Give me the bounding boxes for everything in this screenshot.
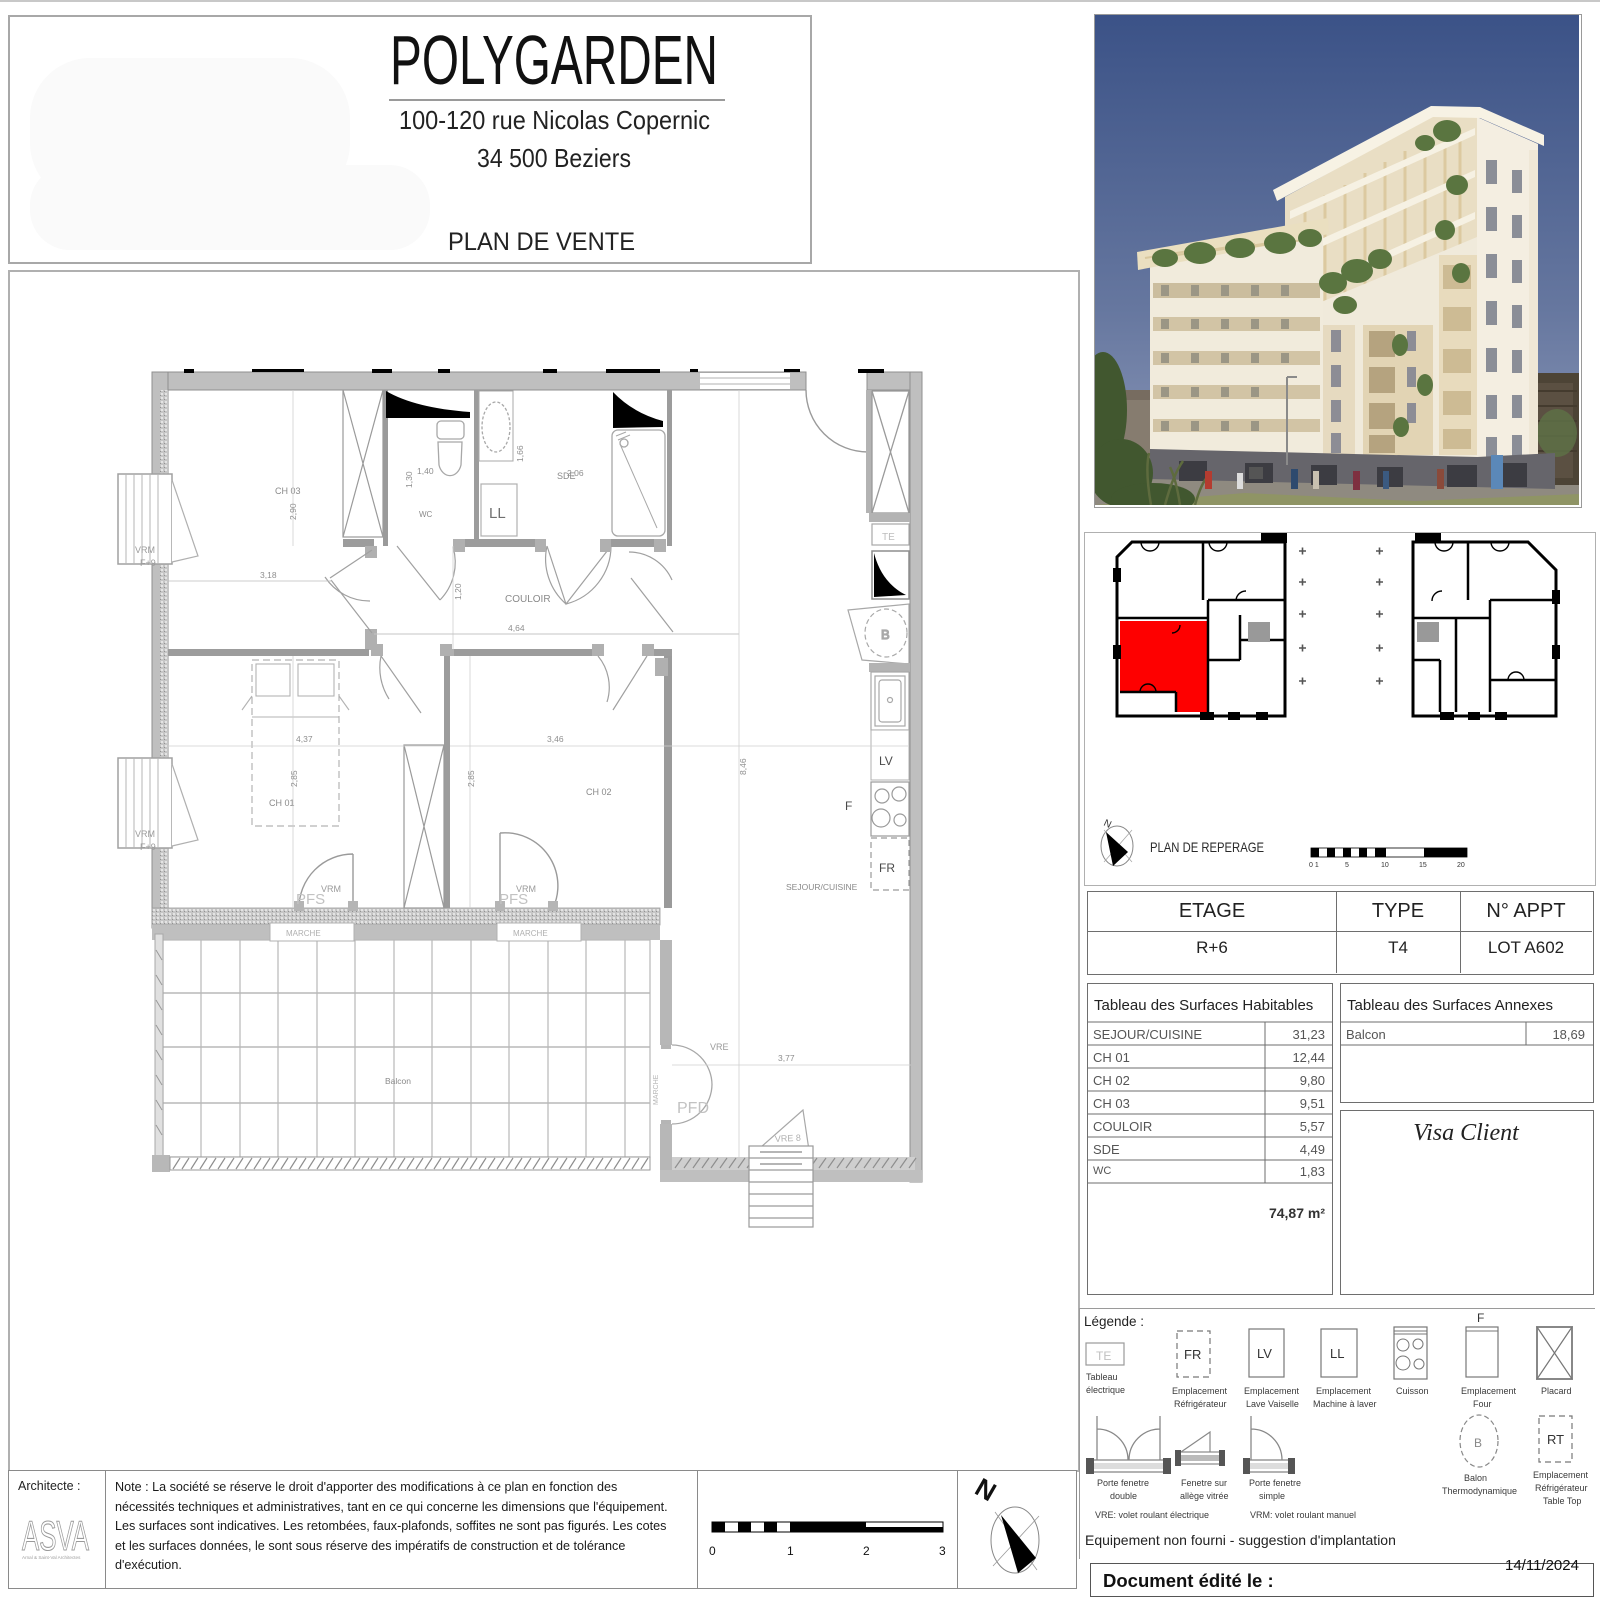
svg-text:Emplacement: Emplacement (1533, 1470, 1589, 1480)
svg-text:Tableau: Tableau (1086, 1372, 1118, 1382)
svg-text:F+9: F+9 (140, 558, 156, 568)
svg-text:B: B (1474, 1436, 1482, 1450)
svg-text:0: 0 (709, 1544, 716, 1558)
svg-text:5: 5 (1345, 862, 1349, 869)
svg-text:Réfrigérateur: Réfrigérateur (1535, 1483, 1588, 1493)
svg-text:34 500 Beziers: 34 500 Beziers (477, 143, 631, 173)
svg-text:Porte fenetre: Porte fenetre (1097, 1478, 1149, 1488)
svg-text:TE: TE (1096, 1349, 1111, 1363)
svg-text:N: N (1102, 818, 1113, 831)
svg-text:1,30: 1,30 (404, 471, 414, 488)
svg-text:100-120 rue Nicolas Copernic: 100-120 rue Nicolas Copernic (399, 105, 710, 135)
svg-text:MARCHE: MARCHE (513, 929, 548, 938)
svg-text:Placard: Placard (1541, 1386, 1572, 1396)
svg-text:Lave Vaiselle: Lave Vaiselle (1246, 1399, 1299, 1409)
svg-text:LV: LV (1257, 1346, 1272, 1361)
svg-text:CH 02: CH 02 (586, 787, 612, 797)
svg-text:1: 1 (787, 1544, 794, 1558)
svg-text:LV: LV (879, 754, 893, 768)
svg-text:FR: FR (1184, 1347, 1201, 1362)
svg-text:PLAN DE VENTE: PLAN DE VENTE (448, 228, 635, 256)
svg-text:2: 2 (863, 1544, 870, 1558)
svg-text:3,46: 3,46 (547, 734, 564, 744)
svg-text:allège vitrée: allège vitrée (1180, 1491, 1229, 1501)
svg-text:TE: TE (882, 532, 895, 543)
svg-text:Machine à laver: Machine à laver (1313, 1399, 1377, 1409)
svg-text:F: F (1477, 1311, 1484, 1325)
svg-text:10: 10 (1381, 862, 1389, 869)
svg-text:FR: FR (879, 861, 895, 875)
svg-text:Emplacement: Emplacement (1172, 1386, 1228, 1396)
svg-text:0 1: 0 1 (1309, 862, 1319, 869)
svg-text:Emplacement: Emplacement (1316, 1386, 1372, 1396)
svg-text:2,06: 2,06 (567, 468, 584, 478)
svg-text:PLAN DE REPERAGE: PLAN DE REPERAGE (1150, 839, 1264, 855)
svg-text:RT: RT (1547, 1432, 1564, 1447)
svg-text:2,85: 2,85 (466, 770, 476, 787)
svg-text:WC: WC (419, 510, 433, 519)
svg-text:VRE 8: VRE 8 (775, 1133, 802, 1144)
svg-text:Cuisson: Cuisson (1396, 1386, 1429, 1396)
svg-text:LL: LL (489, 505, 506, 522)
svg-text:double: double (1110, 1491, 1137, 1501)
svg-text:CH 01: CH 01 (269, 798, 295, 808)
svg-text:CH 03: CH 03 (275, 486, 301, 496)
svg-text:Porte fenetre: Porte fenetre (1249, 1478, 1301, 1488)
svg-text:VRM: VRM (135, 545, 155, 555)
svg-text:2,85: 2,85 (289, 770, 299, 787)
svg-text:Emplacement: Emplacement (1244, 1386, 1300, 1396)
svg-text:1,20: 1,20 (453, 583, 463, 600)
svg-text:F: F (845, 799, 852, 813)
svg-text:ASVA: ASVA (22, 1514, 89, 1559)
svg-text:Fenetre sur: Fenetre sur (1181, 1478, 1227, 1488)
svg-text:électrique: électrique (1086, 1385, 1125, 1395)
svg-text:Balcon: Balcon (385, 1076, 411, 1086)
svg-text:Emplacement: Emplacement (1461, 1386, 1517, 1396)
svg-text:N: N (970, 1472, 1001, 1507)
svg-text:VRE: volet roulant électrique: VRE: volet roulant électrique (1095, 1510, 1209, 1520)
svg-text:MARCHE: MARCHE (653, 1074, 660, 1105)
svg-text:8,46: 8,46 (738, 758, 748, 775)
svg-text:3,18: 3,18 (260, 570, 277, 580)
svg-text:4,64: 4,64 (508, 623, 525, 633)
svg-text:COULOIR: COULOIR (505, 594, 551, 605)
svg-text:VRM: VRM (135, 829, 155, 839)
svg-text:Table Top: Table Top (1543, 1496, 1581, 1506)
svg-text:VRM: volet roulant manuel: VRM: volet roulant manuel (1250, 1510, 1356, 1520)
svg-text:Réfrigérateur: Réfrigérateur (1174, 1399, 1227, 1409)
svg-text:3,77: 3,77 (778, 1053, 795, 1063)
svg-text:Arnal & Saint-Val Architectes: Arnal & Saint-Val Architectes (22, 1555, 81, 1560)
svg-text:15: 15 (1419, 862, 1427, 869)
svg-text:20: 20 (1457, 862, 1465, 869)
svg-text:VRM: VRM (321, 884, 341, 894)
svg-text:3: 3 (939, 1544, 946, 1558)
svg-text:simple: simple (1259, 1491, 1285, 1501)
svg-text:B: B (881, 627, 890, 642)
svg-text:VRE: VRE (710, 1042, 729, 1052)
svg-text:SEJOUR/CUISINE: SEJOUR/CUISINE (786, 882, 858, 892)
svg-text:1,40: 1,40 (417, 466, 434, 476)
svg-text:Four: Four (1473, 1399, 1492, 1409)
svg-text:4,37: 4,37 (296, 734, 313, 744)
svg-text:PFD: PFD (677, 1100, 709, 1117)
svg-text:Balon: Balon (1464, 1473, 1487, 1483)
svg-text:2,90: 2,90 (288, 503, 298, 520)
svg-text:MARCHE: MARCHE (286, 929, 321, 938)
svg-text:1,66: 1,66 (515, 445, 525, 462)
svg-text:Thermodynamique: Thermodynamique (1442, 1486, 1517, 1496)
svg-text:F+9: F+9 (140, 842, 156, 852)
svg-text:LL: LL (1330, 1346, 1344, 1361)
svg-text:Equipement non fourni - sugges: Equipement non fourni - suggestion d'imp… (1085, 1532, 1396, 1548)
svg-text:VRM: VRM (516, 884, 536, 894)
svg-text:POLYGARDEN: POLYGARDEN (390, 21, 718, 99)
